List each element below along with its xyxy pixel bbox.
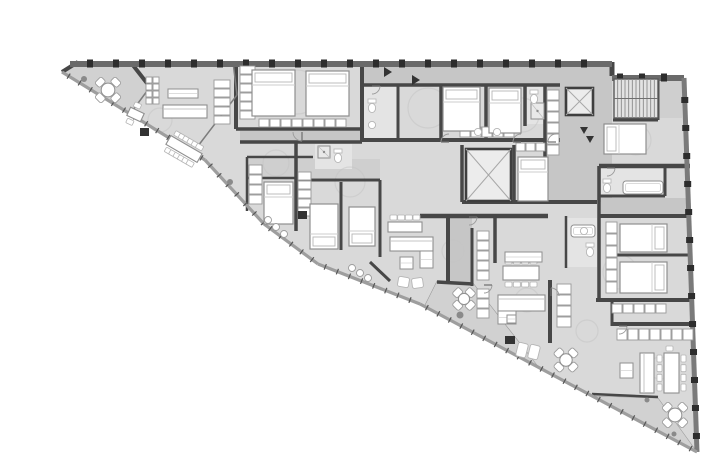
window-mullion <box>191 60 197 68</box>
wardrobe-row-cell <box>645 304 655 313</box>
toilet <box>530 94 537 103</box>
wardrobe-row-cell <box>214 89 230 97</box>
storage-row-cell <box>547 112 559 122</box>
window-mullion <box>683 153 690 159</box>
terrace-table <box>458 293 469 304</box>
wardrobe-row-cell <box>612 304 622 313</box>
floor-drain <box>457 312 464 319</box>
bed-part <box>313 237 335 246</box>
plant <box>349 265 356 272</box>
window-mullion <box>399 60 405 68</box>
wardrobe-row-cell <box>281 119 291 127</box>
dining-table <box>503 266 539 280</box>
window-mullion <box>555 60 561 68</box>
bed <box>489 88 521 133</box>
dining-table-group <box>388 215 422 232</box>
floor-drain <box>81 76 87 82</box>
wardrobe-row-cell <box>314 119 324 127</box>
window-mullion <box>686 237 693 243</box>
wardrobe-row-cell <box>606 270 617 281</box>
floor-plan-canvas <box>0 0 726 470</box>
toilet <box>586 247 593 256</box>
chair <box>666 346 673 351</box>
terrace-table <box>560 354 572 366</box>
plant <box>265 217 272 224</box>
window-mullion <box>451 60 457 68</box>
window-mullion <box>688 293 695 299</box>
window-mullion <box>269 60 275 68</box>
kitchen-counter-cell <box>661 329 671 340</box>
utility-column-cell <box>298 190 311 198</box>
bed <box>349 207 375 246</box>
corridor-core <box>450 218 472 282</box>
chair <box>505 282 512 287</box>
wardrobe-row-cell <box>606 258 617 269</box>
window-mullion <box>581 60 587 68</box>
toilet <box>368 103 375 112</box>
window-mullion <box>477 60 483 68</box>
wardrobe-row-cell <box>270 119 280 127</box>
wardrobe-row-cell <box>477 251 489 260</box>
window-mullion <box>373 60 379 68</box>
wardrobe-row-cell <box>214 80 230 88</box>
window-mullion <box>692 405 699 411</box>
window-mullion <box>690 349 697 355</box>
wardrobe-row-cell <box>526 143 535 151</box>
storage-row-cell <box>547 101 559 111</box>
wardrobe-row-cell <box>477 289 489 298</box>
window-mullion <box>681 97 688 103</box>
armchair <box>397 276 410 288</box>
wardrobe-row-cell <box>336 119 346 127</box>
floor-plan-page <box>0 0 726 470</box>
sink <box>368 121 375 128</box>
chair <box>405 215 412 220</box>
window-mullion <box>684 181 691 187</box>
window-mullion <box>685 209 692 215</box>
kitchen-units-cell <box>153 77 159 83</box>
bed-part <box>309 74 346 83</box>
planter <box>298 211 307 219</box>
sofa <box>390 237 433 251</box>
chair <box>390 215 397 220</box>
wardrobe-row-cell <box>606 282 617 293</box>
chair <box>413 215 420 220</box>
window-mullion <box>682 125 689 131</box>
window-mullion <box>689 321 696 327</box>
chair <box>657 384 662 391</box>
kitchen-counter-cell <box>639 329 649 340</box>
wardrobe-row-cell <box>214 107 230 115</box>
corridor-top <box>362 66 612 85</box>
bed-part <box>655 227 664 249</box>
bed <box>620 224 667 252</box>
window-mullion <box>87 60 93 68</box>
planter <box>505 336 515 344</box>
bed-part <box>521 160 545 169</box>
wardrobe-row-cell <box>214 98 230 106</box>
kitchen-island-cell <box>557 284 571 294</box>
wardrobe-row-cell <box>656 304 666 313</box>
room-by-stairs <box>660 80 682 118</box>
storage-row-cell <box>547 123 559 133</box>
bed <box>620 262 667 293</box>
kitchen-counter-cell <box>672 329 682 340</box>
storage-row-cell <box>547 145 559 155</box>
window-mullion <box>693 433 700 439</box>
toilet-tank <box>530 90 538 94</box>
armchair <box>411 277 423 288</box>
wardrobe-row-cell <box>259 119 269 127</box>
chair <box>681 384 686 391</box>
chair <box>681 365 686 372</box>
storage-row-cell <box>547 90 559 100</box>
bath-top <box>363 86 397 139</box>
bed <box>518 157 548 201</box>
kitchen-counter-cell <box>683 329 693 340</box>
plant <box>365 275 372 282</box>
wardrobe-row-cell <box>634 304 644 313</box>
kitchen-units-cell <box>146 98 152 104</box>
hall-mid <box>247 159 380 178</box>
dining-table <box>664 353 679 393</box>
wardrobe-row-cell <box>325 119 335 127</box>
kitchen-units-cell <box>146 77 152 83</box>
wardrobe-row-cell <box>477 231 489 240</box>
wardrobe-row-cell <box>249 185 262 194</box>
kitchen-island-cell <box>557 317 571 327</box>
wardrobe-row-cell <box>477 261 489 270</box>
window-mullion <box>687 265 694 271</box>
wardrobe-row-cell <box>292 119 302 127</box>
bed-part <box>446 90 477 99</box>
wardrobe-row-cell <box>249 195 262 204</box>
wardrobe-row-cell <box>477 299 489 308</box>
window-mullion <box>113 60 119 68</box>
dining-table <box>388 222 422 232</box>
wardrobe-row-cell <box>606 246 617 257</box>
chair <box>126 118 134 125</box>
toilet-tank <box>334 149 342 153</box>
window-mullion <box>321 60 327 68</box>
wardrobe-row-cell <box>623 304 633 313</box>
terrace-table <box>101 83 115 97</box>
kitchen-counter-cell <box>628 329 638 340</box>
bed <box>252 70 295 116</box>
plant <box>281 231 288 238</box>
toilet <box>334 153 341 162</box>
chair <box>657 355 662 362</box>
floor-drain <box>672 432 677 437</box>
toilet-tank <box>603 179 611 183</box>
sink <box>493 128 500 135</box>
chair <box>398 215 405 220</box>
window-mullion <box>529 60 535 68</box>
toilet <box>603 183 610 192</box>
sofa <box>640 353 654 393</box>
wardrobe-row-cell <box>606 222 617 233</box>
chair <box>522 282 529 287</box>
window-mullion <box>425 60 431 68</box>
kitchen-units-cell <box>153 91 159 97</box>
utility-column-cell <box>298 172 311 180</box>
wardrobe-row-cell <box>249 175 262 184</box>
bed-part <box>655 265 664 290</box>
wardrobe-row-cell <box>303 119 313 127</box>
utility-column-cell <box>298 181 311 189</box>
bed-part <box>492 91 518 100</box>
plant <box>357 270 364 277</box>
bathtub-inner <box>626 184 661 192</box>
wardrobe-row-cell <box>536 143 545 151</box>
window-mullion <box>217 60 223 68</box>
bed <box>604 124 646 154</box>
window-mullion <box>691 377 698 383</box>
wardrobe-row-cell <box>249 165 262 174</box>
sofa <box>498 295 545 311</box>
planter <box>140 128 149 136</box>
bed <box>443 87 480 131</box>
toilet-tank <box>368 99 376 103</box>
utility-column-cell <box>298 199 311 207</box>
chair <box>513 282 520 287</box>
shower-drain <box>536 110 538 112</box>
wardrobe-row-cell <box>516 143 525 151</box>
bed-part <box>607 127 616 151</box>
kitchen-units-cell <box>146 84 152 90</box>
kitchen-counter-cell <box>650 329 660 340</box>
kitchen-island-cell <box>557 306 571 316</box>
chair <box>681 355 686 362</box>
chair <box>657 374 662 381</box>
plant <box>273 224 280 231</box>
window-mullion <box>165 60 171 68</box>
chair <box>657 365 662 372</box>
window-mullion <box>347 60 353 68</box>
kitchen-units-cell <box>146 91 152 97</box>
bed-part <box>255 73 292 82</box>
bed <box>310 204 338 249</box>
wardrobe-row-cell <box>477 241 489 250</box>
corridor-right <box>601 198 690 214</box>
floor-drain <box>227 179 233 185</box>
chair <box>681 374 686 381</box>
chair <box>530 282 537 287</box>
wardrobe-row-cell <box>214 116 230 124</box>
window-mullion <box>503 60 509 68</box>
sofa <box>163 105 207 118</box>
toilet-tank <box>586 243 594 247</box>
kitchen-units-cell <box>153 98 159 104</box>
window-mullion <box>295 60 301 68</box>
bed-part <box>267 185 290 194</box>
wall <box>437 282 473 284</box>
kitchen-units-cell <box>153 84 159 90</box>
floor-drain <box>645 398 650 403</box>
bed-part <box>352 234 372 243</box>
sink <box>580 227 587 234</box>
kitchen-island-cell <box>557 295 571 305</box>
window-mullion <box>661 74 667 82</box>
shower-drain <box>323 151 325 153</box>
sink <box>474 128 481 135</box>
window-mullion <box>139 60 145 68</box>
wardrobe-row-cell <box>477 309 489 318</box>
wardrobe-row-cell <box>477 271 489 280</box>
bed <box>306 71 349 116</box>
wardrobe-row-cell <box>606 234 617 245</box>
terrace-table <box>668 408 682 422</box>
